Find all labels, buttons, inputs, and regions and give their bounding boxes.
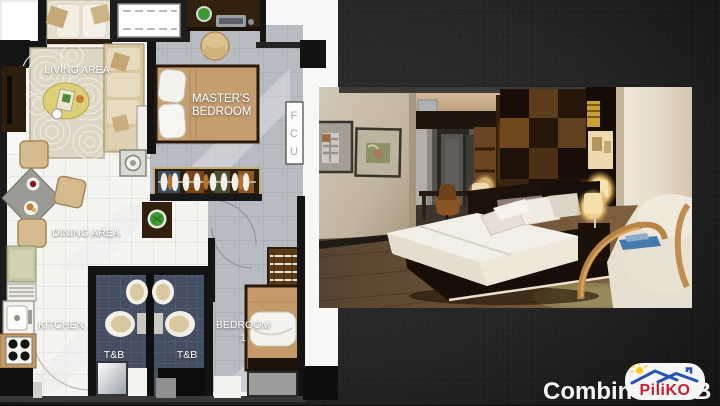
svg-text:C: C <box>290 128 298 140</box>
svg-text:KITCHEN: KITCHEN <box>38 319 84 331</box>
svg-text:BEDROOM: BEDROOM <box>216 319 270 331</box>
svg-text:F: F <box>291 110 298 122</box>
svg-text:PiliKO: PiliKO <box>639 382 690 399</box>
svg-text:MASTER'S: MASTER'S <box>192 93 250 105</box>
svg-text:BEDROOM: BEDROOM <box>192 106 251 118</box>
svg-text:DINING AREA: DINING AREA <box>52 227 120 239</box>
svg-text:U: U <box>290 146 298 158</box>
svg-text:T&B: T&B <box>177 349 197 361</box>
svg-text:1: 1 <box>240 332 246 344</box>
svg-text:T&B: T&B <box>104 349 124 361</box>
svg-text:LIVING AREA: LIVING AREA <box>44 64 109 76</box>
